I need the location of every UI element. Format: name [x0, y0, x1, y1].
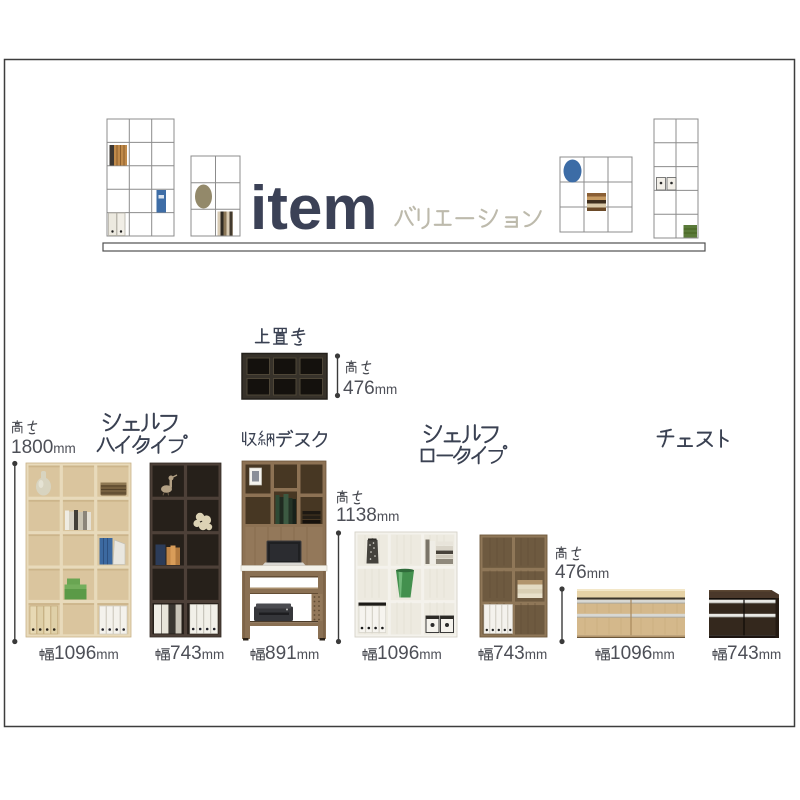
svg-text:743mm: 743mm — [727, 643, 781, 664]
svg-text:1138mm: 1138mm — [336, 505, 399, 526]
svg-text:1096mm: 1096mm — [377, 643, 442, 664]
svg-text:743mm: 743mm — [170, 643, 224, 664]
svg-text:891mm: 891mm — [265, 643, 319, 664]
svg-text:476mm: 476mm — [343, 378, 397, 399]
svg-text:item: item — [250, 174, 377, 243]
svg-text:476mm: 476mm — [555, 562, 609, 583]
svg-text:743mm: 743mm — [493, 643, 547, 664]
svg-text:1800mm: 1800mm — [11, 437, 76, 458]
svg-text:1096mm: 1096mm — [610, 643, 675, 664]
svg-text:1096mm: 1096mm — [54, 643, 119, 664]
